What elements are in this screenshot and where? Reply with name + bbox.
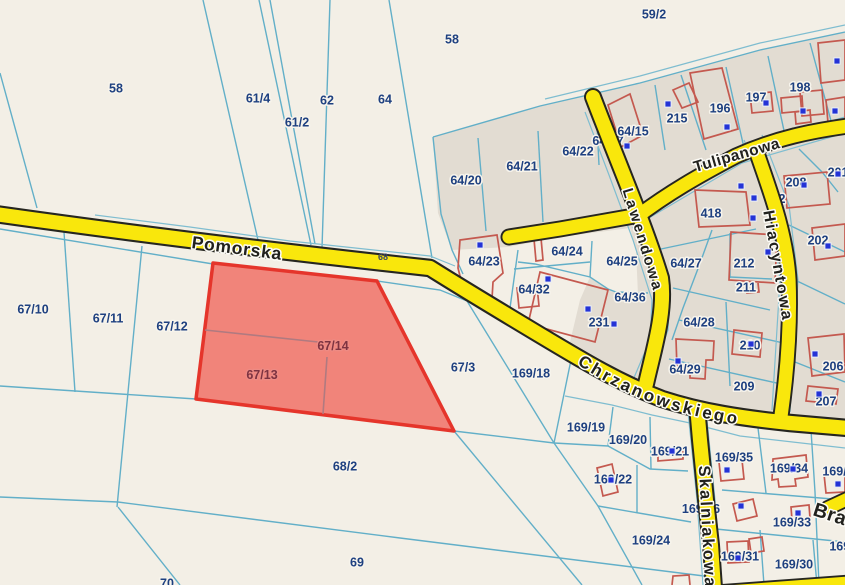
svg-text:64: 64: [378, 93, 392, 107]
svg-text:169/34: 169/34: [770, 462, 808, 476]
svg-text:61/4: 61/4: [246, 92, 270, 106]
svg-text:169/35: 169/35: [715, 451, 753, 465]
svg-text:169/18: 169/18: [512, 367, 550, 381]
svg-text:211: 211: [736, 281, 756, 295]
svg-text:418: 418: [701, 207, 722, 221]
svg-text:206: 206: [823, 360, 844, 374]
svg-text:64/24: 64/24: [551, 245, 582, 259]
svg-text:64/29: 64/29: [669, 363, 700, 377]
svg-text:68: 68: [378, 252, 388, 262]
svg-text:67/12: 67/12: [156, 320, 187, 334]
svg-text:70: 70: [160, 577, 174, 585]
svg-text:64/21: 64/21: [506, 160, 537, 174]
svg-text:169/3: 169/3: [822, 465, 845, 479]
svg-text:64/27: 64/27: [670, 257, 701, 271]
svg-text:67/14: 67/14: [317, 339, 348, 353]
svg-text:67/13: 67/13: [246, 368, 277, 382]
svg-text:169/3: 169/3: [829, 540, 845, 554]
svg-text:198: 198: [790, 81, 811, 95]
svg-text:169/24: 169/24: [632, 534, 670, 548]
svg-text:169/30: 169/30: [775, 558, 813, 572]
svg-text:69: 69: [350, 556, 364, 570]
svg-text:169/20: 169/20: [609, 433, 647, 447]
svg-text:64/25: 64/25: [606, 255, 637, 269]
svg-text:64/22: 64/22: [562, 145, 593, 159]
svg-text:64/36: 64/36: [614, 291, 645, 305]
svg-text:169/19: 169/19: [567, 421, 605, 435]
svg-text:169/33: 169/33: [773, 516, 811, 530]
svg-text:215: 215: [667, 112, 688, 126]
svg-text:67/10: 67/10: [17, 303, 48, 317]
svg-text:58: 58: [109, 82, 123, 96]
svg-text:62: 62: [320, 94, 334, 108]
svg-text:64/32: 64/32: [518, 283, 549, 297]
svg-text:68/2: 68/2: [333, 460, 357, 474]
svg-text:64/28: 64/28: [683, 316, 714, 330]
svg-text:59/2: 59/2: [642, 8, 666, 22]
svg-text:67/11: 67/11: [93, 312, 124, 326]
svg-text:209: 209: [734, 380, 755, 394]
svg-text:67/3: 67/3: [451, 361, 475, 375]
svg-text:231: 231: [589, 316, 610, 330]
svg-text:61/2: 61/2: [285, 116, 309, 130]
svg-text:64/15: 64/15: [617, 125, 648, 139]
svg-text:64/23: 64/23: [468, 255, 499, 269]
svg-text:58: 58: [445, 33, 459, 47]
svg-text:64/20: 64/20: [450, 174, 481, 188]
svg-text:212: 212: [734, 257, 755, 271]
svg-text:196: 196: [710, 102, 731, 116]
